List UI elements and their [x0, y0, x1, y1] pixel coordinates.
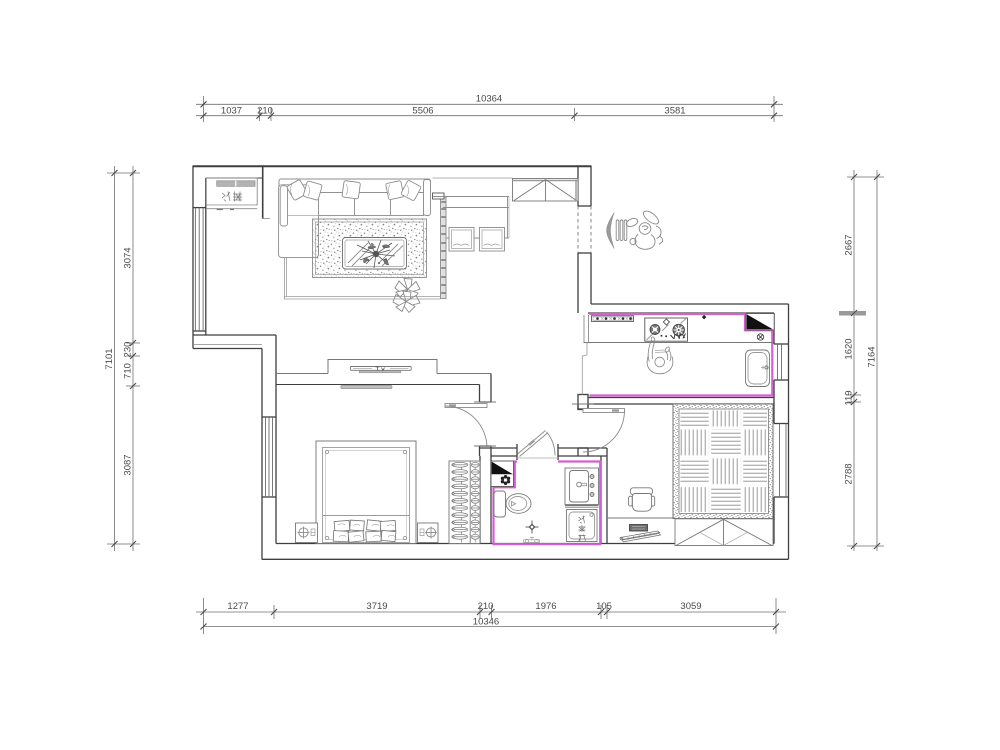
svg-text:7164: 7164 — [867, 346, 878, 367]
svg-text:1976: 1976 — [535, 601, 556, 612]
svg-text:3087: 3087 — [123, 454, 134, 475]
svg-text:10364: 10364 — [476, 94, 502, 105]
svg-text:210: 210 — [257, 106, 273, 117]
svg-text:119: 119 — [844, 390, 855, 405]
svg-text:1277: 1277 — [227, 601, 248, 612]
svg-text:3581: 3581 — [664, 106, 685, 117]
svg-text:7101: 7101 — [104, 348, 115, 369]
svg-text:210: 210 — [478, 601, 494, 612]
svg-text:1620: 1620 — [844, 338, 855, 359]
svg-text:2788: 2788 — [844, 463, 855, 484]
svg-text:10346: 10346 — [473, 617, 499, 628]
svg-text:1037: 1037 — [221, 106, 242, 117]
svg-text:3059: 3059 — [680, 601, 701, 612]
svg-text:5506: 5506 — [412, 106, 433, 117]
svg-text:3719: 3719 — [366, 601, 387, 612]
svg-text:710: 710 — [123, 363, 134, 379]
svg-text:230: 230 — [123, 342, 134, 358]
svg-text:105: 105 — [596, 601, 612, 612]
svg-text:3074: 3074 — [123, 247, 134, 268]
svg-text:2667: 2667 — [844, 234, 855, 255]
